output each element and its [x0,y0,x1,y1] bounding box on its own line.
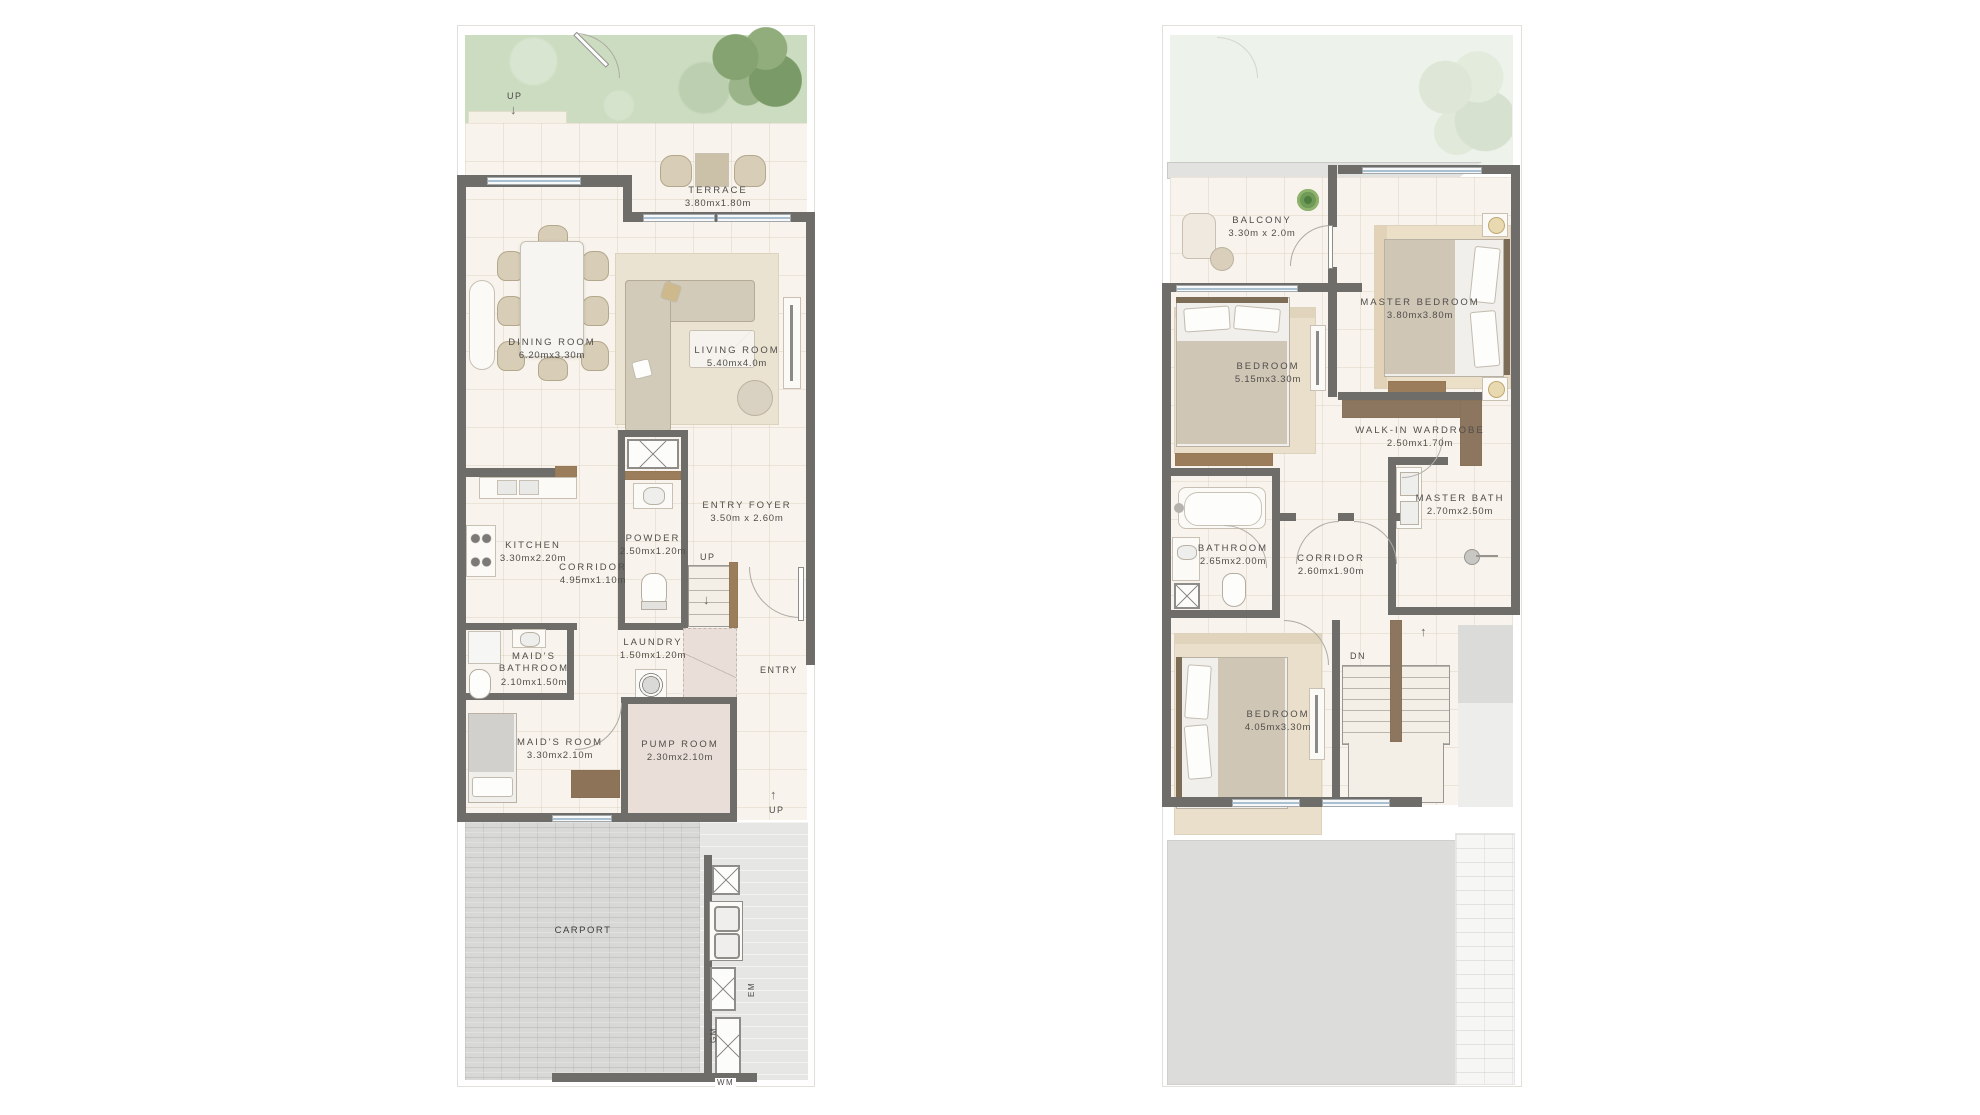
under-stair-area [683,628,737,702]
room-label-corridor: CORRIDOR 4.95mx1.10m [559,562,627,588]
wall [1280,513,1296,521]
stairs-up-arrow-icon: ↑ [1420,625,1427,638]
window [487,177,581,185]
wall [618,623,688,630]
utility-xbox [712,865,740,895]
tree-icon [707,27,802,113]
room-name: MAID'S ROOM [517,737,603,749]
room-dims: 3.30mx2.10m [517,750,603,762]
room-label-kitchen: KITCHEN 3.30mx2.20m [500,540,566,566]
room-dims: 3.30m x 2.0m [1228,228,1295,240]
wall [681,430,688,630]
shaft-xbox [1174,583,1200,609]
wall [618,430,625,630]
wall [1272,468,1280,618]
shaft-xbox [627,439,679,469]
room-dims: 2.30mx2.10m [641,752,718,764]
room-label-pump-room: PUMP ROOM 2.30mx2.10m [641,739,718,765]
em-label: EM [747,982,756,997]
room-dims: 4.95mx1.10m [559,575,627,587]
room-label-corridor-first: CORRIDOR 2.60mx1.90m [1297,553,1365,579]
stair-landing [1348,743,1444,803]
room-dims: 5.15mx3.30m [1235,374,1301,386]
room-name: BALCONY [1228,215,1295,227]
utility-xbox [710,967,736,1011]
window [552,815,612,822]
kitchen-sink [497,480,517,495]
sink-basin [1177,545,1197,560]
window [1232,799,1300,807]
gm-label: GM [709,1027,718,1043]
walkway-ghost [1455,833,1515,1085]
kitchen-sink [519,480,539,495]
room-dims: 2.50mx1.20m [620,546,686,558]
room-name: ENTRY FOYER [702,500,791,512]
wall [1338,513,1354,521]
room-label-maids-room: MAID'S ROOM 3.30mx2.10m [517,737,603,763]
room-dims: 3.80mx1.80m [685,198,751,210]
sideboard [469,280,495,370]
room-dims: 2.10mx1.50m [495,677,573,689]
bed-headboard [1176,297,1288,303]
room-name: MASTER BATH [1416,493,1505,505]
bed-pillow [1184,724,1213,780]
terrace-table [695,153,729,187]
room-name: BEDROOM [1245,709,1311,721]
first-floor-plan: BALCONY 3.30m x 2.0m MASTER BEDROOM 3.80… [1162,25,1522,1087]
terrace-chair [734,155,766,187]
stairs-up-label: UP [700,552,716,562]
wall [621,697,737,704]
room-label-powder: POWDER 2.50mx1.20m [620,533,686,559]
room-label-carport: CARPORT [555,925,612,937]
shower-head-icon [1464,549,1480,565]
shower-arm-icon [1476,555,1498,557]
bed-headboard [1504,239,1510,375]
stair-stringer [729,562,738,628]
toilet [469,669,491,699]
room-name: BEDROOM [1235,361,1301,373]
wall [1328,165,1337,227]
lamp-icon [1488,217,1505,234]
wall [457,175,466,817]
room-name: TERRACE [685,185,751,197]
balcony-table [1210,247,1234,271]
sink-basin [643,487,665,505]
room-label-master-bath: MASTER BATH 2.70mx2.50m [1416,493,1505,519]
meter-box [714,906,740,932]
utility-xbox [715,1017,741,1075]
wall [1332,620,1340,807]
meter-box [714,933,740,959]
wall [730,697,737,815]
powder-shelf [625,471,681,480]
window [1322,799,1390,807]
room-dims: 4.05mx3.30m [1245,722,1311,734]
wall [1388,457,1396,615]
room-label-living: LIVING ROOM 5.40mx4.0m [694,345,779,371]
window [643,214,715,222]
room-name: LAUNDRY [620,637,686,649]
room-label-bedroom-front: BEDROOM 5.15mx3.30m [1235,361,1301,387]
room-name: CORRIDOR [559,562,627,574]
room-label-terrace: TERRACE 3.80mx1.80m [685,185,751,211]
room-dims: 3.50m x 2.60m [702,513,791,525]
ghost-area [1458,703,1513,807]
wm-label: WM [715,1078,736,1087]
room-label-master-bedroom: MASTER BEDROOM 3.80mx3.80m [1360,297,1479,323]
room-label-bathroom: BATHROOM 2.65mx2.00m [1198,543,1268,569]
plant-icon [1293,185,1323,215]
bathtub-basin [1184,492,1262,526]
room-name: WALK-IN WARDROBE [1355,425,1484,437]
wall [1388,607,1512,615]
room-dims: 2.70mx2.50m [1416,506,1505,518]
wall [1338,392,1482,400]
room-name: MASTER BEDROOM [1360,297,1479,309]
room-name: CARPORT [555,925,612,937]
porch-up-label: UP [769,805,785,815]
bed-pillow [1233,305,1281,333]
room-dims: 2.50mx1.70m [1355,438,1484,450]
ghost-area [1458,625,1513,703]
room-label-dining: DINING ROOM 6.20mx3.30m [508,337,595,363]
room-name: MAID'S BATHROOM [495,651,573,676]
room-name: POWDER [620,533,686,545]
room-label-maids-bathroom: MAID'S BATHROOM 2.10mx1.50m [495,651,573,689]
room-name: DINING ROOM [508,337,595,349]
window [717,214,791,222]
bed-pillow [1183,305,1231,332]
room-name: BATHROOM [1198,543,1268,555]
porch-up-arrow-icon: ↑ [770,788,777,801]
garden-up-label: UP [507,91,523,101]
stairs-down-arrow-icon: ↓ [703,593,710,606]
room-label-balcony: BALCONY 3.30m x 2.0m [1228,215,1295,241]
garden-down-arrow-icon: ↓ [510,103,517,116]
carport-ghost [1167,840,1457,1085]
room-name: KITCHEN [500,540,566,552]
toilet-tank [641,601,667,610]
room-label-bedroom-back: BEDROOM 4.05mx3.30m [1245,709,1311,735]
room-label-entry-foyer: ENTRY FOYER 3.50m x 2.60m [702,500,791,526]
floorplan-canvas: UP ↓ TERRACE 3.80mx1.80m [0,0,1980,1115]
dining-chair [581,251,609,281]
room-dims: 5.40mx4.0m [694,358,779,370]
room-label-walk-in-wardrobe: WALK-IN WARDROBE 2.50mx1.70m [1355,425,1484,451]
dining-chair [581,296,609,326]
balcony-door-leaf [1328,225,1333,269]
doormat [571,770,620,798]
room-dims: 2.65mx2.00m [1198,556,1268,568]
wall [457,468,557,477]
wall [1511,165,1520,615]
wall [618,430,688,437]
stove [466,525,496,577]
sink-basin [520,632,540,647]
bed-blanket [469,714,514,772]
room-dims: 3.80mx3.80m [1360,310,1479,322]
window [1362,167,1482,174]
room-dims: 6.20mx3.30m [508,350,595,362]
pouf [737,380,773,416]
stairs-dn-label: DN [1350,651,1366,661]
room-dims: 3.30mx2.20m [500,553,566,565]
wall [621,697,628,815]
window [1176,285,1298,292]
faucet-icon [1174,503,1184,513]
bed-pillow [1184,664,1212,720]
wall [806,212,815,665]
sofa [625,280,671,432]
tv-icon [790,305,793,381]
entry-door-leaf [798,567,804,621]
tv-icon [1315,695,1318,753]
room-name: LIVING ROOM [694,345,779,357]
wall [1162,610,1280,618]
bed-blanket [1177,341,1287,444]
terrace-chair [660,155,692,187]
carport-area [465,822,700,1080]
built-in-wardrobe [1175,453,1273,466]
ground-floor-plan: UP ↓ TERRACE 3.80mx1.80m [457,25,815,1087]
bed-headboard [1176,657,1182,807]
room-name: PUMP ROOM [641,739,718,751]
toilet [1222,573,1246,607]
wall [1328,267,1337,397]
tv-icon [1316,331,1319,385]
wall [1392,513,1400,521]
wall [1162,468,1280,476]
stair-divider [1390,620,1402,742]
entry-label: ENTRY [760,665,798,675]
room-label-laundry: LAUNDRY 1.50mx1.20m [620,637,686,663]
tree-ghost-icon [1417,47,1512,162]
room-name: CORRIDOR [1297,553,1365,565]
wall [1162,283,1171,807]
room-dims: 2.60mx1.90m [1297,566,1365,578]
room-dims: 1.50mx1.20m [620,650,686,662]
lamp-icon [1488,381,1505,398]
bed-pillow [472,777,513,797]
